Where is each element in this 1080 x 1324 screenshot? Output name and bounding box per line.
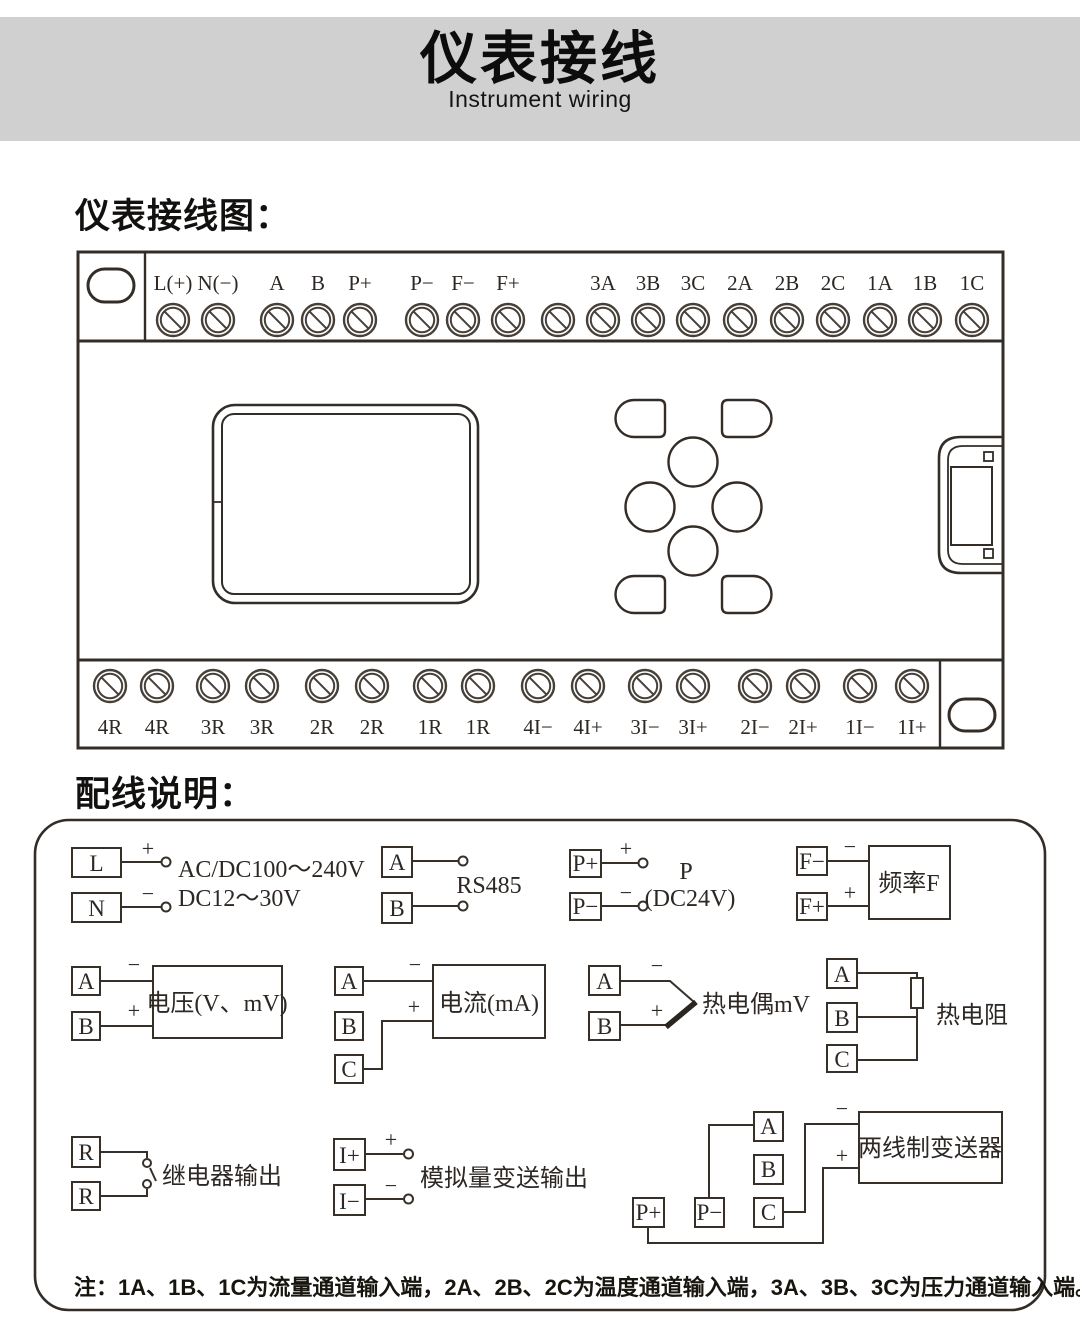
terminal-letter: A — [341, 969, 358, 994]
terminal-label: 2R — [360, 715, 385, 739]
terminal-label: 1R — [418, 715, 443, 739]
screw-terminal-icon — [522, 670, 554, 702]
power-range-line1: AC/DC100～240V — [178, 857, 365, 883]
terminal-label: 2C — [821, 271, 846, 295]
terminal-letter: P− — [573, 894, 599, 919]
left-button — [626, 483, 675, 532]
rs485-label: RS485 — [456, 873, 521, 899]
up-button — [669, 438, 718, 487]
polarity-plus: + — [836, 1143, 848, 1168]
terminal-letter: P+ — [573, 851, 599, 876]
frequency-label: 频率F — [878, 870, 939, 897]
screw-terminal-icon — [677, 304, 709, 336]
polarity-plus: + — [844, 880, 856, 905]
wire — [363, 1021, 433, 1069]
connector-inner-contour — [948, 446, 1002, 564]
relay-label: 继电器输出 — [162, 1163, 282, 1190]
screw-terminal-icon — [677, 670, 709, 702]
wire-terminal — [404, 1150, 413, 1159]
display-screen — [213, 405, 478, 603]
terminal-letter: F− — [799, 849, 825, 874]
wiring-rs485: A B RS485 — [382, 847, 522, 923]
terminal-letter: B — [78, 1014, 93, 1039]
wiring-transmitter: A B C P+ P− − + 两线制变送器 — [633, 1096, 1002, 1243]
connector-notch-bottom — [984, 549, 993, 558]
terminal-label: 3B — [636, 271, 661, 295]
screw-terminal-icon — [909, 304, 941, 336]
screw-terminal-icon — [844, 670, 876, 702]
polarity-plus: + — [385, 1127, 397, 1152]
polarity-plus: + — [408, 994, 420, 1019]
wiring-power: L N + − AC/DC100～240V DC12～30V — [72, 836, 365, 922]
terminal-label: 2I+ — [788, 715, 817, 739]
connector-socket — [951, 467, 992, 545]
p24-line1: P — [679, 859, 692, 885]
terminal-letter: A — [596, 969, 613, 994]
wire — [100, 1152, 147, 1158]
terminal-label: 2I− — [740, 715, 769, 739]
terminal-letter: N — [88, 896, 105, 921]
terminal-label: 4R — [145, 715, 170, 739]
polarity-minus: − — [836, 1096, 848, 1121]
terminal-letter: B — [761, 1157, 776, 1182]
terminal-label: 3R — [250, 715, 275, 739]
terminal-label: 1B — [913, 271, 938, 295]
polarity-minus: − — [385, 1173, 397, 1198]
terminal-label: 2R — [310, 715, 335, 739]
terminal-label: B — [311, 271, 325, 295]
screw-terminal-icon — [246, 670, 278, 702]
terminal-label: L(+) — [154, 271, 193, 295]
wire-terminal — [639, 859, 648, 868]
current-label: 电流(mA) — [439, 990, 539, 1017]
terminal-letter: I+ — [339, 1143, 360, 1168]
terminal-label: 1A — [867, 271, 894, 295]
screw-terminal-icon — [197, 670, 229, 702]
terminal-letter: A — [760, 1114, 777, 1139]
wiring-rtd: A B C 热电阻 — [827, 959, 1008, 1072]
terminal-label: P+ — [348, 271, 372, 295]
analog-out-label: 模拟量变送输出 — [420, 1165, 588, 1192]
screw-terminal-icon — [344, 304, 376, 336]
terminal-letter: A — [389, 850, 406, 875]
relay-contact — [143, 1180, 151, 1188]
terminal-label: F+ — [496, 271, 520, 295]
terminal-label: 1I+ — [897, 715, 926, 739]
terminal-letter: F+ — [799, 894, 825, 919]
screw-terminal-icon — [94, 670, 126, 702]
terminal-label: N(−) — [198, 271, 239, 295]
device-panel: L(+)N(−)ABP+P−F−F+3A3B3C2A2B2C1A1B1C 4R4… — [78, 252, 1003, 748]
wiring-relay: R R 继电器输出 — [72, 1137, 282, 1210]
display-inner-frame — [222, 414, 470, 594]
right-button — [713, 483, 762, 532]
relay-switch-blade — [150, 1168, 156, 1181]
screw-terminal-icon — [864, 304, 896, 336]
terminal-letter: P− — [697, 1200, 723, 1225]
screw-terminal-icon — [739, 670, 771, 702]
corner-button-top-left — [616, 400, 666, 437]
polarity-minus: − — [844, 834, 856, 859]
terminal-label: 2A — [727, 271, 754, 295]
screw-terminal-icon — [542, 304, 574, 336]
terminal-letter: C — [834, 1047, 849, 1072]
screw-terminal-icon — [492, 304, 524, 336]
wiring-current: A B C − + 电流(mA) — [335, 952, 545, 1083]
resistor-icon — [911, 978, 923, 1008]
wiring-note: 注：1A、1B、1C为流量通道输入端，2A、2B、2C为温度通道输入端，3A、3… — [74, 1270, 1024, 1302]
wiring-legend: L N + − AC/DC100～240V DC12～30V A B RS485 — [35, 820, 1045, 1310]
polarity-minus: − — [142, 881, 154, 906]
wire-terminal — [404, 1195, 413, 1204]
polarity-plus: + — [651, 998, 663, 1023]
voltage-label: 电压(V、mV) — [146, 990, 287, 1017]
screw-terminal-icon — [817, 304, 849, 336]
terminal-label: 3C — [681, 271, 706, 295]
wiring-diagram-artwork: L(+)N(−)ABP+P−F−F+3A3B3C2A2B2C1A1B1C 4R4… — [0, 0, 1080, 1324]
screw-terminal-icon — [771, 304, 803, 336]
terminal-letter: I− — [339, 1189, 360, 1214]
wire — [100, 1189, 147, 1196]
terminal-letter: B — [834, 1006, 849, 1031]
screw-terminal-icon — [141, 670, 173, 702]
screw-terminal-icon — [724, 304, 756, 336]
polarity-minus: − — [409, 952, 421, 977]
screw-terminal-icon — [629, 670, 661, 702]
display-outer-frame — [213, 405, 478, 603]
keypad — [616, 400, 772, 613]
wiring-analog-out: I+ I− + − 模拟量变送输出 — [334, 1127, 588, 1215]
side-connector — [939, 437, 1002, 573]
screw-terminal-icon — [261, 304, 293, 336]
terminal-label: 3I+ — [678, 715, 707, 739]
terminal-labels-top: L(+)N(−)ABP+P−F−F+3A3B3C2A2B2C1A1B1C — [154, 271, 985, 295]
terminal-label: 1R — [466, 715, 491, 739]
connector-notch-top — [984, 452, 993, 461]
screw-terminal-icon — [447, 304, 479, 336]
terminal-labels-bottom: 4R4R3R3R2R2R1R1R4I−4I+3I−3I+2I−2I+1I−1I+ — [98, 715, 927, 739]
terminal-label: A — [269, 271, 285, 295]
transmitter-label: 两线制变送器 — [858, 1135, 1002, 1162]
polarity-plus: + — [620, 836, 632, 861]
screw-terminal-icon — [414, 670, 446, 702]
terminal-letter: R — [78, 1140, 94, 1165]
terminal-letter: C — [341, 1057, 356, 1082]
corner-button-bottom-left — [616, 576, 666, 613]
terminal-label: 4R — [98, 715, 123, 739]
terminal-letter: C — [761, 1200, 776, 1225]
screw-terminal-icon — [157, 304, 189, 336]
relay-contact — [143, 1159, 151, 1167]
thermocouple-label: 热电偶mV — [702, 991, 811, 1018]
terminal-letter: B — [341, 1014, 356, 1039]
screw-terminal-icon — [202, 304, 234, 336]
screw-terminal-icon — [356, 670, 388, 702]
terminal-label: 1I− — [845, 715, 874, 739]
terminal-label: 3I− — [630, 715, 659, 739]
wiring-voltage: A B − + 电压(V、mV) — [72, 952, 288, 1040]
wiring-thermocouple: A B − + 热电偶mV — [589, 953, 811, 1040]
terminal-letter: A — [78, 969, 95, 994]
screw-terminal-icon — [306, 670, 338, 702]
screw-terminal-icon — [572, 670, 604, 702]
wire — [709, 1125, 754, 1198]
terminal-row-bottom — [94, 670, 928, 702]
terminal-row-top — [157, 304, 988, 336]
terminal-letter: A — [834, 962, 851, 987]
terminal-label: 1C — [960, 271, 985, 295]
polarity-plus: + — [128, 998, 140, 1023]
power-range-line2: DC12～30V — [178, 886, 301, 912]
rtd-label: 热电阻 — [936, 1002, 1008, 1029]
screw-terminal-icon — [406, 304, 438, 336]
wire-terminal — [162, 858, 171, 867]
polarity-minus: − — [128, 952, 140, 977]
mount-slot-bottom-right — [949, 699, 995, 731]
wire-terminal — [459, 902, 468, 911]
screw-terminal-icon — [787, 670, 819, 702]
terminal-label: F− — [451, 271, 475, 295]
terminal-letter: B — [389, 896, 404, 921]
screw-terminal-icon — [302, 304, 334, 336]
terminal-label: 3A — [590, 271, 617, 295]
screw-terminal-icon — [956, 304, 988, 336]
polarity-plus: + — [142, 836, 154, 861]
mount-slot-top-left — [88, 269, 134, 302]
terminal-letter: R — [78, 1184, 94, 1209]
terminal-letter: B — [597, 1014, 612, 1039]
down-button — [669, 527, 718, 576]
terminal-label: 3R — [201, 715, 226, 739]
wiring-frequency: F− F+ − + 频率F — [797, 834, 950, 920]
polarity-minus: − — [651, 953, 663, 978]
screw-terminal-icon — [896, 670, 928, 702]
corner-button-top-right — [722, 400, 772, 437]
terminal-label: 4I− — [523, 715, 552, 739]
terminal-letter: P+ — [636, 1200, 662, 1225]
screw-terminal-icon — [462, 670, 494, 702]
p24-line2: (DC24V) — [645, 886, 736, 912]
wire-terminal — [459, 857, 468, 866]
polarity-minus: − — [620, 880, 632, 905]
terminal-label: P− — [410, 271, 434, 295]
wire — [857, 1008, 917, 1060]
corner-button-bottom-right — [722, 576, 772, 613]
wire — [857, 973, 917, 978]
thermocouple-icon — [666, 1002, 696, 1027]
wire-terminal — [162, 903, 171, 912]
terminal-label: 2B — [775, 271, 800, 295]
wiring-p24: P+ P− + − P (DC24V) — [570, 836, 735, 920]
terminal-label: 4I+ — [573, 715, 602, 739]
terminal-letter: L — [89, 851, 103, 876]
screw-terminal-icon — [632, 304, 664, 336]
screw-terminal-icon — [587, 304, 619, 336]
